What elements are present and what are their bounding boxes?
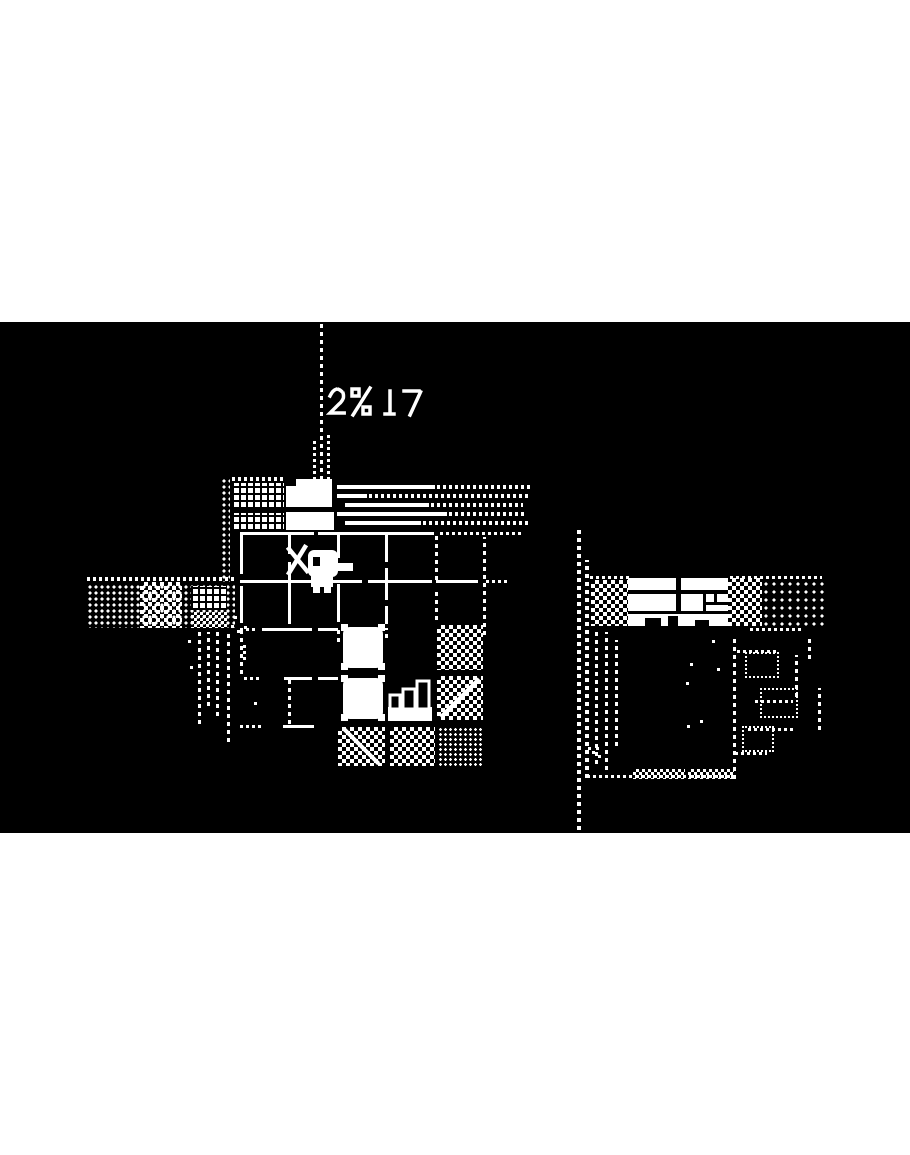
ruin-dotted-wall xyxy=(748,728,794,731)
room-wall-v xyxy=(385,606,388,624)
camper-notch xyxy=(645,618,661,626)
ruin-dotted-wall xyxy=(795,655,798,697)
camper-inner-dashes xyxy=(595,632,598,764)
awning-rail-dots xyxy=(431,503,523,507)
camper-seam xyxy=(628,611,728,614)
rug-tile xyxy=(390,727,435,766)
tile-slash xyxy=(439,677,480,718)
room-wall-v-dots xyxy=(483,537,486,635)
hotel-dotted-west-wall xyxy=(221,478,230,582)
camper-dot-field xyxy=(762,580,824,628)
awning-rail-dots xyxy=(437,485,533,489)
room-wall-v-dots xyxy=(435,536,438,580)
rug-tile-dots xyxy=(438,727,483,766)
camper-checker-right xyxy=(728,578,762,626)
waterfall-column xyxy=(216,632,219,716)
stairs-tile xyxy=(386,677,434,725)
camper-top-dots xyxy=(590,576,630,579)
west-path-checker xyxy=(140,582,182,628)
stray-pixels xyxy=(588,747,591,750)
room-wall-v xyxy=(385,534,388,562)
room-wall-v-dots xyxy=(385,628,388,638)
ruin-dotted-wall xyxy=(735,752,767,755)
awning-rail xyxy=(345,521,421,525)
camper-top-dots xyxy=(730,576,822,579)
letterbox-bottom xyxy=(0,833,910,1155)
duck-head xyxy=(308,550,338,577)
dithered-smoke-glyphs xyxy=(326,380,434,426)
room-wall-v xyxy=(385,568,388,584)
west-path-lattice xyxy=(191,586,227,610)
bed-tile xyxy=(343,678,383,719)
flag-pole-side-dots xyxy=(327,434,330,480)
duck-beak xyxy=(337,563,353,571)
ruin-dotted-wall xyxy=(808,635,811,659)
duck-leg xyxy=(313,587,320,593)
tile-slash xyxy=(342,727,380,765)
room-wall-h xyxy=(368,580,432,583)
hotel-door-notch xyxy=(286,479,296,486)
room-wall-h xyxy=(262,628,312,631)
camper-inner-dashes xyxy=(605,632,608,770)
camper-body xyxy=(628,578,728,626)
room-wall-v-dots xyxy=(288,678,291,724)
waterfall-column xyxy=(243,644,246,660)
room-wall-h-dots xyxy=(240,725,262,728)
ruin-outline xyxy=(760,688,798,718)
screenshot-stage xyxy=(0,0,910,1155)
camper-inner-dashes xyxy=(615,640,618,746)
game-viewport[interactable] xyxy=(0,322,910,833)
camper-bottom-dots xyxy=(750,628,802,631)
duck-body xyxy=(311,576,333,587)
stray-pixels xyxy=(690,663,693,666)
awning-rail xyxy=(337,494,367,498)
ruin-outline xyxy=(745,652,779,678)
room-wall-v-dots xyxy=(337,628,340,642)
ruin-dotted-wall xyxy=(818,688,821,730)
room-wall-v-dots xyxy=(435,588,438,620)
stray-pixels xyxy=(188,640,191,643)
camper-notch xyxy=(695,620,709,626)
camper-west-dashes xyxy=(577,528,581,830)
room-wall-h xyxy=(240,532,314,535)
camper-checker-left xyxy=(591,580,628,626)
bed-tile xyxy=(343,627,383,668)
shore-wave-dither xyxy=(688,769,734,779)
checker-floor-tile xyxy=(437,676,483,720)
room-wall-h xyxy=(283,725,314,728)
player-character xyxy=(286,544,358,608)
room-wall-h-dots xyxy=(440,532,522,535)
shore-wave-dither xyxy=(633,769,685,779)
camper-notch xyxy=(668,616,678,626)
ruin-dotted-wall xyxy=(733,637,736,779)
flag-pole-dashes xyxy=(320,322,323,480)
room-wall-h xyxy=(318,677,338,680)
hotel-window-lattice xyxy=(232,513,284,531)
west-path-checker-fine xyxy=(191,612,227,628)
waterfall-column xyxy=(227,634,230,742)
camper-seam xyxy=(706,602,728,605)
awning-rail-dots xyxy=(423,521,530,525)
waterfall-column xyxy=(207,632,210,706)
room-wall-h xyxy=(318,628,338,631)
room-wall-v xyxy=(240,534,243,574)
awning-rail-dots xyxy=(449,512,527,516)
room-wall-h xyxy=(436,580,478,583)
room-wall-v xyxy=(240,586,243,620)
stray-pixels xyxy=(234,616,237,619)
awning-rail-dots xyxy=(369,494,531,498)
checker-floor-tile xyxy=(437,625,483,670)
rug-tile xyxy=(338,727,385,766)
room-wall-h-dots xyxy=(486,580,508,583)
duck-leg xyxy=(324,587,331,593)
sword-icon xyxy=(289,547,307,573)
awning-rail xyxy=(337,512,447,516)
hotel-window-lattice xyxy=(232,483,284,509)
duck-eye xyxy=(313,557,320,566)
hotel-roof-dashes xyxy=(232,477,284,481)
waterfall-column xyxy=(198,632,201,724)
ruin-dotted-wall xyxy=(755,700,793,703)
camper-seam xyxy=(714,594,717,604)
awning-rail xyxy=(345,503,429,507)
room-wall-h-dots xyxy=(244,677,260,680)
letterbox-top xyxy=(0,0,910,322)
ruin-dotted-wall xyxy=(737,650,777,653)
room-wall-h xyxy=(318,532,434,535)
camper-west-dashes xyxy=(585,560,589,778)
flag-pole-side-dots xyxy=(313,440,316,480)
awning-rail xyxy=(337,485,435,489)
hotel-door xyxy=(286,512,334,530)
room-wall-v xyxy=(385,584,388,600)
west-path-top-dots xyxy=(87,577,234,581)
camper-seam xyxy=(676,578,681,612)
